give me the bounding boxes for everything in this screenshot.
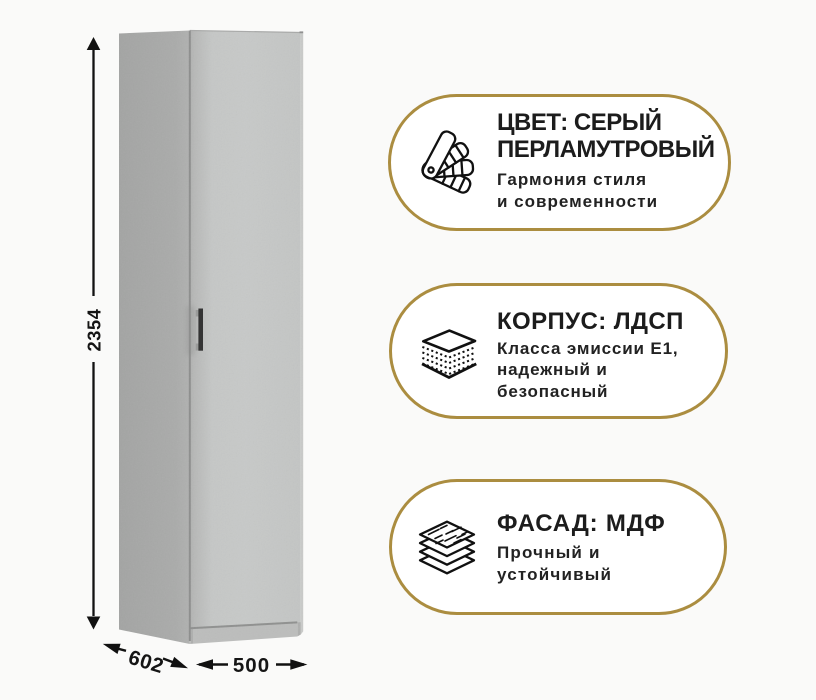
svg-text:602: 602 [126,646,167,678]
svg-text:2354: 2354 [85,308,105,351]
svg-text:500: 500 [233,654,270,677]
